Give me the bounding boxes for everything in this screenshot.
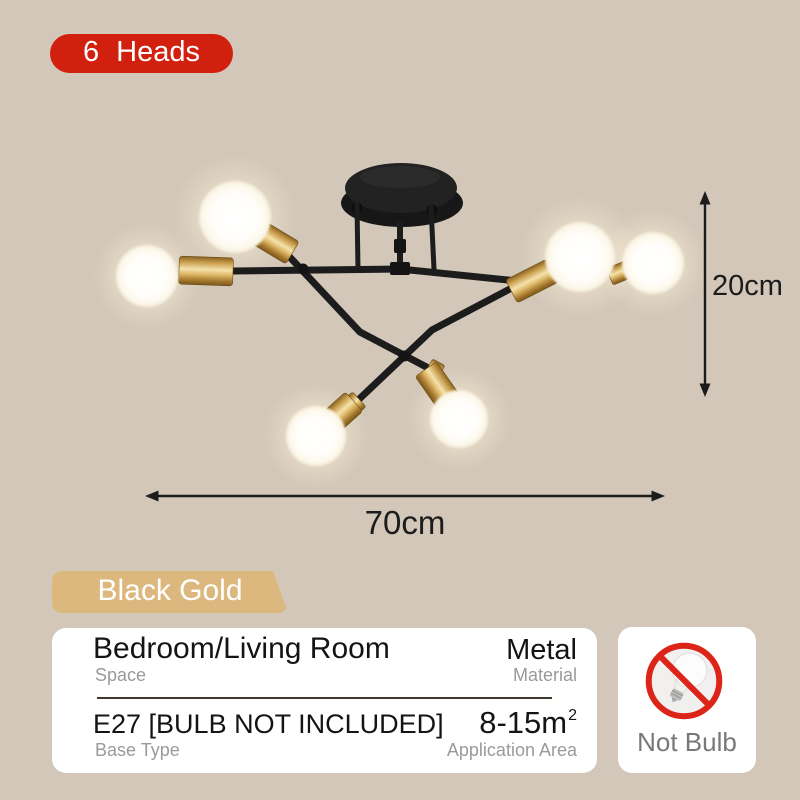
variant-badge: Black Gold <box>52 571 288 613</box>
application-area-label: Application Area <box>447 740 577 761</box>
heads-badge-label: 6 Heads <box>83 36 200 71</box>
gold-sockets <box>179 216 632 442</box>
not-bulb-card: Not Bulb <box>618 627 756 773</box>
space-label: Space <box>95 665 146 686</box>
base-type-label: Base Type <box>95 740 180 761</box>
spec-card: Bedroom/Living Room Space Metal Material… <box>52 628 597 773</box>
application-area-value: 8-15m2 <box>479 705 577 741</box>
material-value: Metal <box>506 634 577 667</box>
material-label: Material <box>513 665 577 686</box>
width-dimension-label: 70cm <box>335 504 475 542</box>
height-dimension-label: 20cm <box>712 270 783 303</box>
area-superscript: 2 <box>568 707 577 724</box>
no-bulb-icon <box>641 638 727 724</box>
light-bulbs <box>116 181 684 466</box>
product-infographic: 6 Heads <box>0 0 800 800</box>
space-value: Bedroom/Living Room <box>93 632 390 666</box>
variant-badge-label: Black Gold <box>97 574 242 610</box>
ceiling-lamp <box>93 155 707 489</box>
lamp-rods <box>233 205 527 404</box>
heads-badge: 6 Heads <box>50 34 233 73</box>
width-dimension-arrow <box>145 491 665 502</box>
ceiling-canopy <box>341 163 463 227</box>
base-type-value: E27 [BULB NOT INCLUDED] <box>93 709 444 740</box>
spec-divider <box>97 697 552 699</box>
not-bulb-label: Not Bulb <box>618 727 756 758</box>
height-dimension-arrow <box>700 191 711 397</box>
